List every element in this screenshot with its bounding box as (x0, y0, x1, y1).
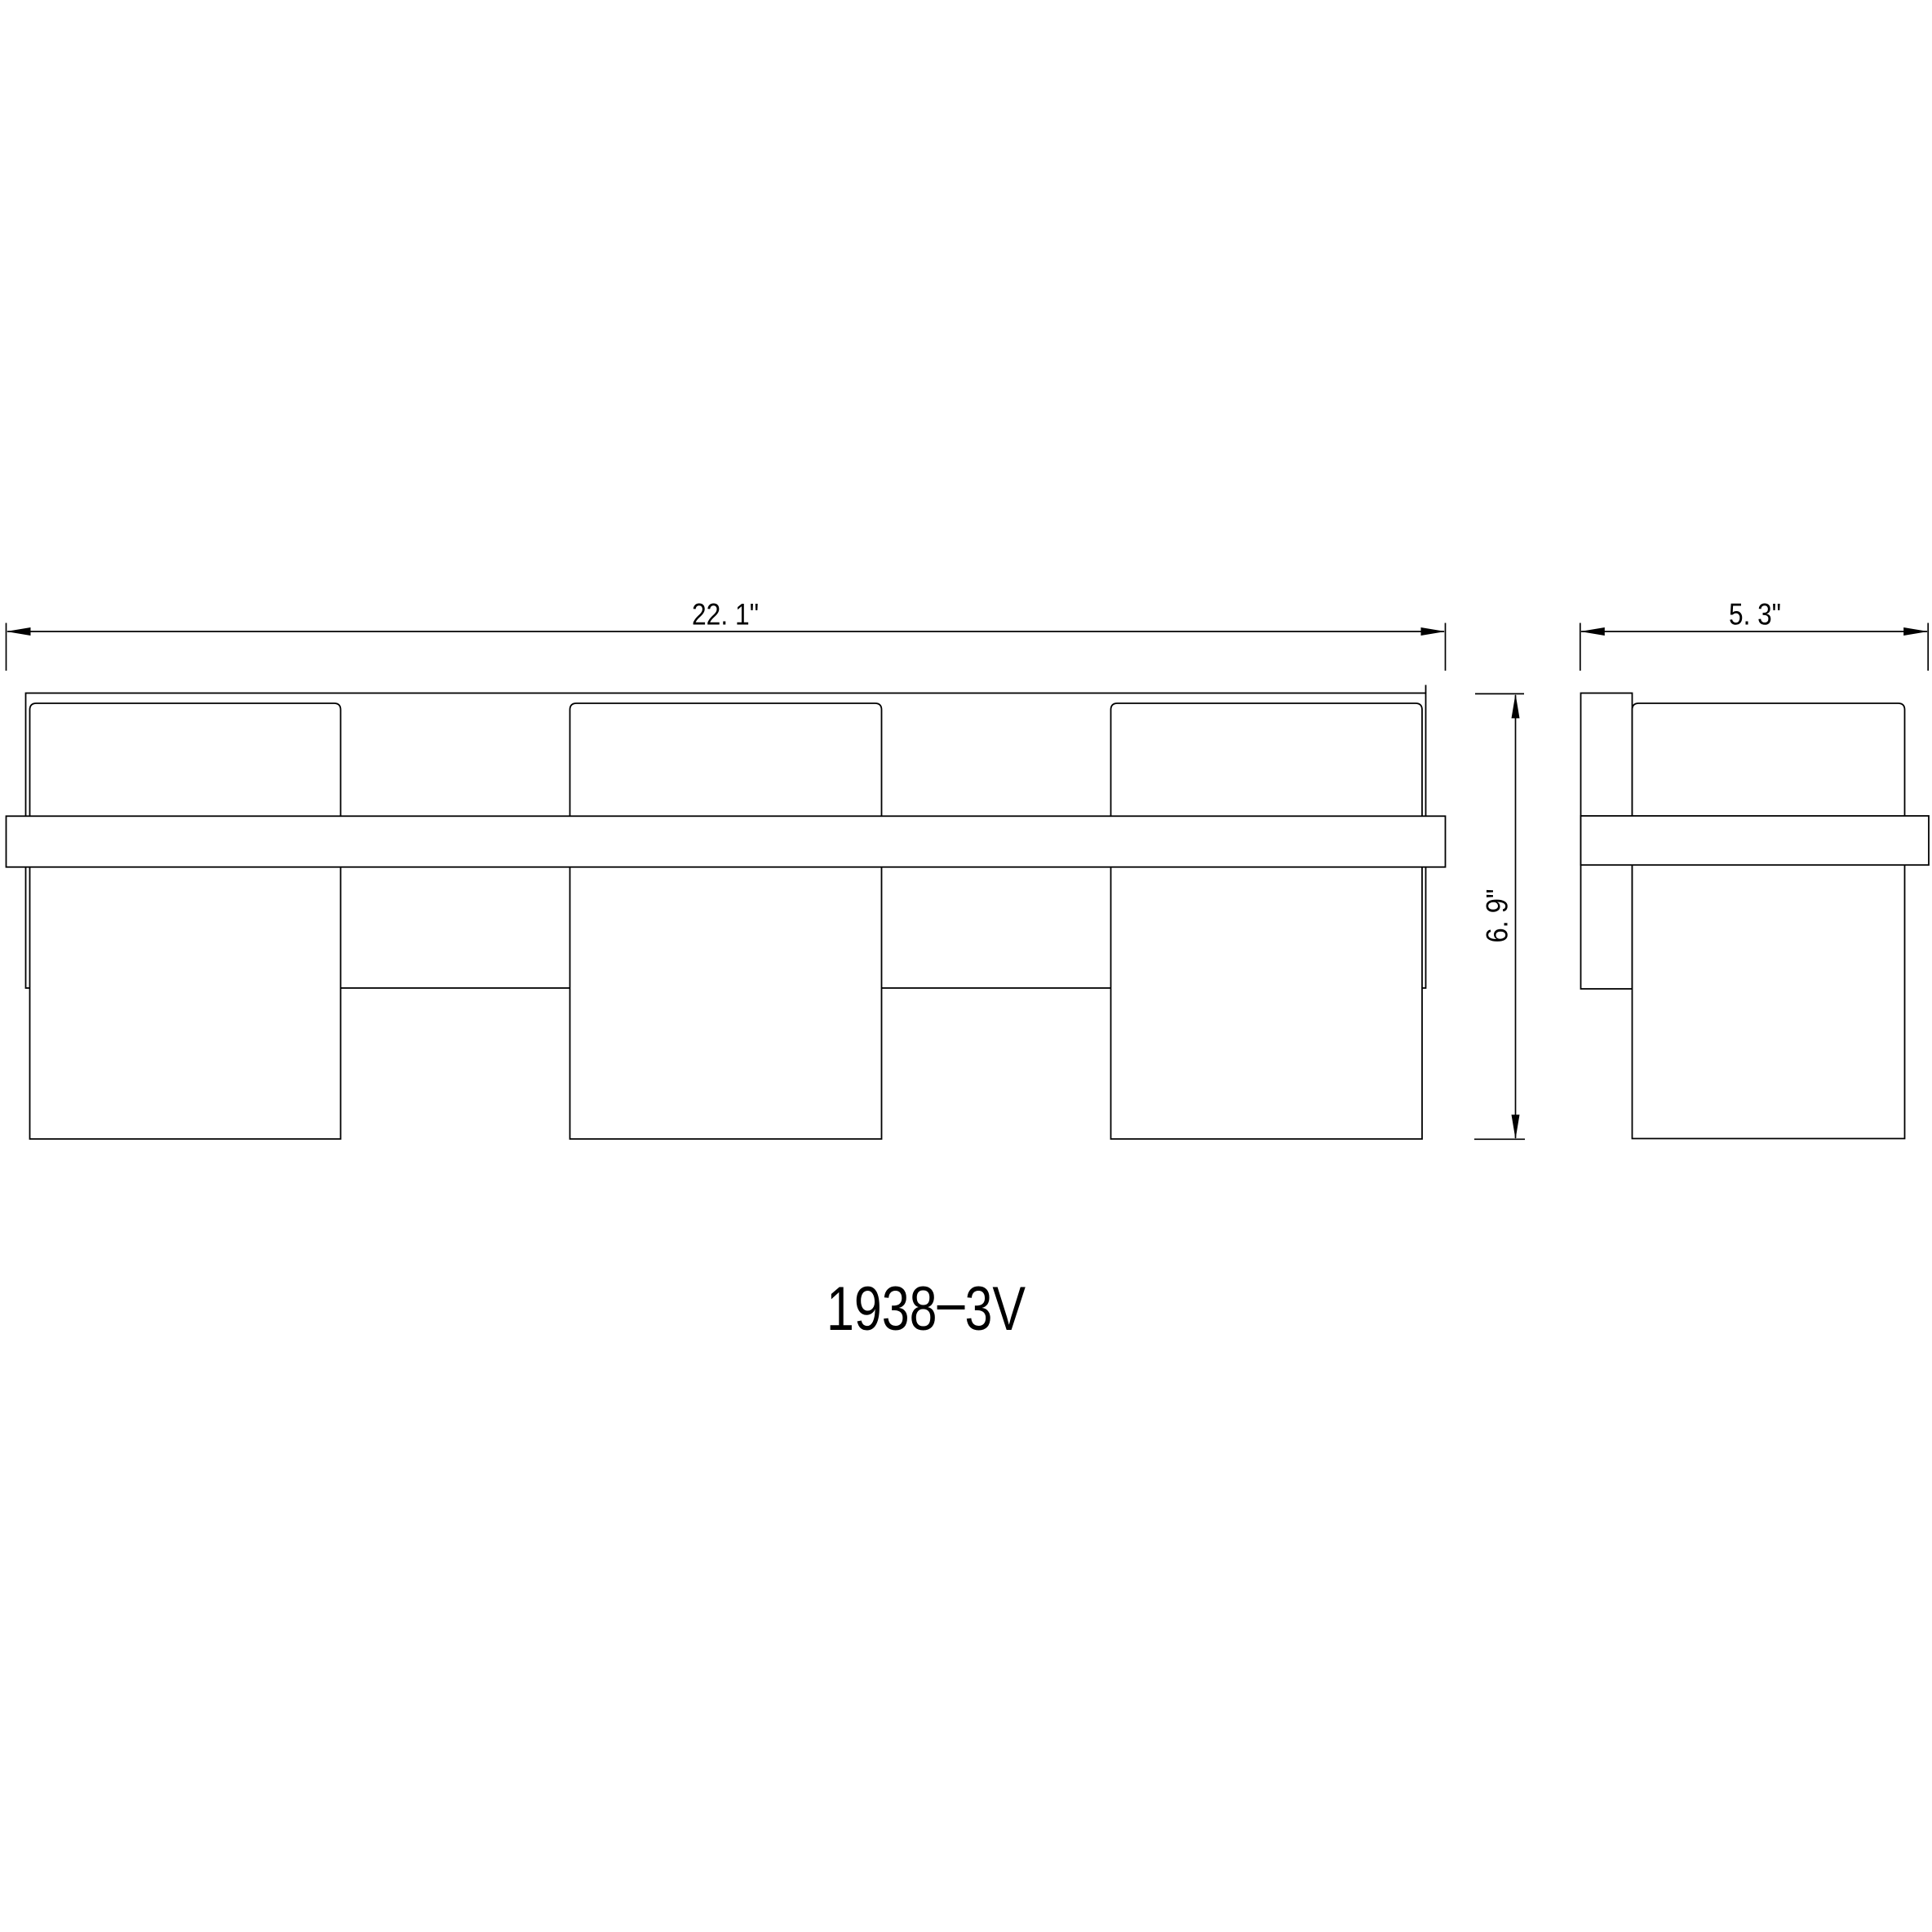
svg-text:6. 9": 6. 9" (1480, 889, 1514, 943)
svg-text:5. 3": 5. 3" (1729, 597, 1781, 631)
svg-text:1938–3V: 1938–3V (826, 1268, 1026, 1344)
svg-text:22. 1": 22. 1" (692, 597, 759, 631)
